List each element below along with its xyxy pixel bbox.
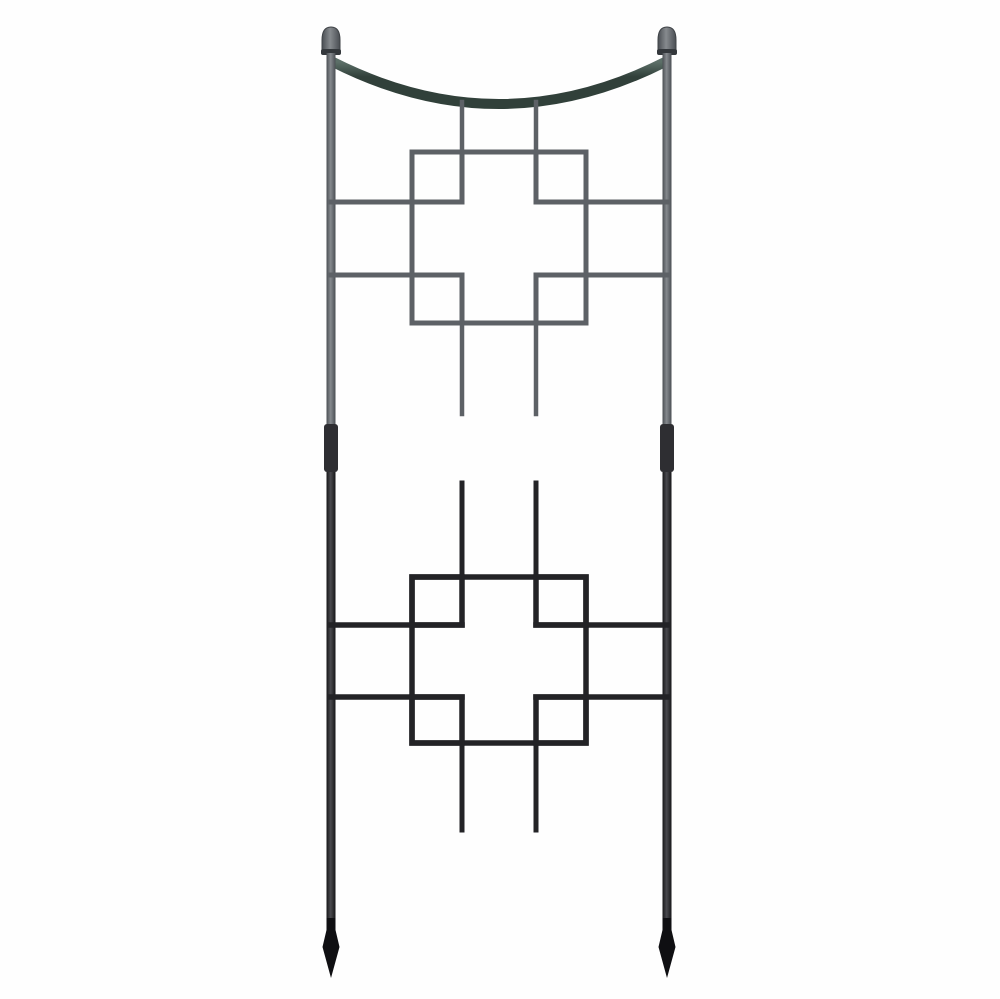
upper-corner-square-tr	[536, 152, 586, 202]
lower-corner-square-bl	[412, 697, 462, 743]
finial-left	[321, 27, 341, 55]
trellis-illustration	[0, 0, 1000, 999]
upper-corner-square-bl	[412, 275, 462, 323]
lower-corner-square-br	[536, 697, 586, 743]
left-post-coupler	[324, 424, 338, 472]
finial-right	[657, 27, 677, 55]
right-foot-spear	[659, 918, 676, 978]
left-post-upper	[327, 53, 336, 426]
right-post-lower	[663, 426, 672, 930]
right-post-upper	[663, 53, 672, 426]
lower-panel	[331, 483, 667, 830]
finial-right-ball	[658, 27, 676, 50]
right-post-coupler	[660, 424, 674, 472]
left-foot-spear	[323, 918, 340, 978]
lower-corner-square-tr	[536, 577, 586, 625]
left-post-lower	[327, 426, 336, 930]
lower-central-square	[412, 577, 586, 743]
lower-corner-square-tl	[412, 577, 462, 625]
upper-corner-square-tl	[412, 152, 462, 202]
left-post	[323, 53, 340, 978]
upper-panel	[331, 102, 667, 414]
upper-central-square	[412, 152, 586, 323]
trellis-product-photo	[0, 0, 1000, 999]
top-arc-bar	[333, 62, 665, 104]
middle-band	[331, 414, 667, 483]
upper-corner-square-br	[536, 275, 586, 323]
right-post	[659, 53, 676, 978]
finial-left-ball	[322, 27, 340, 50]
